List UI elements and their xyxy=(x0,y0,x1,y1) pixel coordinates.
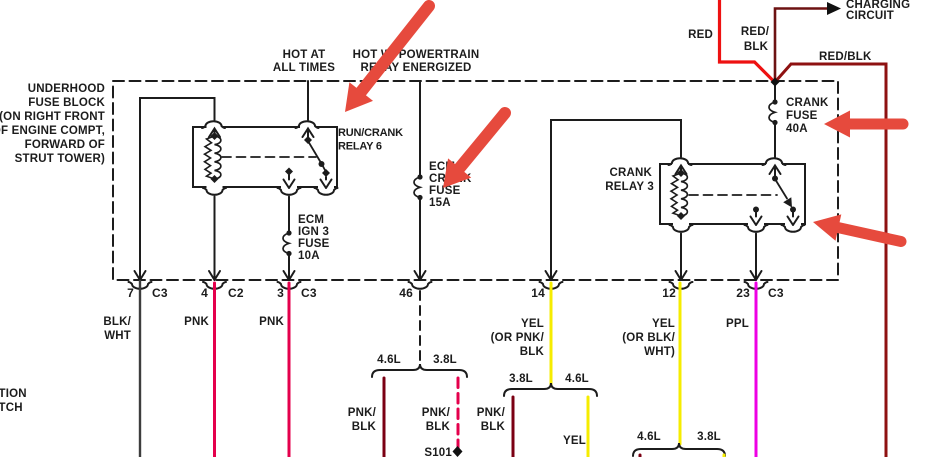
svg-text:4.6L: 4.6L xyxy=(565,373,589,385)
svg-text:(OR BLK/: (OR BLK/ xyxy=(622,332,675,344)
svg-text:4: 4 xyxy=(201,286,208,300)
svg-text:CIRCUIT: CIRCUIT xyxy=(846,10,894,22)
svg-text:YEL: YEL xyxy=(652,318,675,330)
svg-text:TION: TION xyxy=(0,388,27,400)
svg-text:FUSE BLOCK: FUSE BLOCK xyxy=(28,97,105,109)
svg-text:7: 7 xyxy=(127,286,134,300)
svg-text:IGN 3: IGN 3 xyxy=(298,226,329,238)
svg-text:YEL: YEL xyxy=(563,435,586,447)
svg-text:ECM: ECM xyxy=(298,214,324,226)
svg-text:PNK: PNK xyxy=(259,316,284,328)
svg-text:12: 12 xyxy=(662,286,676,300)
svg-text:YEL: YEL xyxy=(521,318,544,330)
svg-text:46: 46 xyxy=(399,286,413,300)
svg-text:BLK: BLK xyxy=(352,421,377,433)
svg-text:ALL TIMES: ALL TIMES xyxy=(273,62,335,74)
svg-text:RELAY 6: RELAY 6 xyxy=(338,141,382,153)
svg-text:BLK/: BLK/ xyxy=(103,316,131,328)
svg-text:10A: 10A xyxy=(298,250,320,262)
svg-text:PNK: PNK xyxy=(184,316,209,328)
svg-text:C3: C3 xyxy=(768,286,784,300)
svg-text:UNDERHOOD: UNDERHOOD xyxy=(28,83,105,95)
svg-text:3.8L: 3.8L xyxy=(697,431,721,443)
svg-text:23: 23 xyxy=(736,286,750,300)
svg-text:15A: 15A xyxy=(429,197,451,209)
svg-text:3.8L: 3.8L xyxy=(433,354,457,366)
svg-text:RED/BLK: RED/BLK xyxy=(819,51,872,63)
svg-text:3: 3 xyxy=(277,286,284,300)
svg-text:PNK/: PNK/ xyxy=(348,407,377,419)
svg-text:40A: 40A xyxy=(786,123,808,135)
svg-text:RED/: RED/ xyxy=(741,26,770,38)
svg-text:(OR PNK/: (OR PNK/ xyxy=(491,332,545,344)
svg-text:WHT): WHT) xyxy=(644,346,675,358)
svg-text:S101: S101 xyxy=(424,447,452,457)
svg-text:C3: C3 xyxy=(301,286,317,300)
svg-text:TCH: TCH xyxy=(0,402,23,414)
svg-text:CRANK: CRANK xyxy=(609,167,652,179)
svg-text:BLK: BLK xyxy=(520,346,545,358)
svg-text:PNK/: PNK/ xyxy=(422,407,451,419)
svg-text:C3: C3 xyxy=(152,286,168,300)
svg-text:C2: C2 xyxy=(228,286,244,300)
svg-text:OF ENGINE COMPT,: OF ENGINE COMPT, xyxy=(0,125,105,137)
svg-text:HOT AT: HOT AT xyxy=(283,49,326,61)
svg-text:WHT: WHT xyxy=(104,330,131,342)
svg-text:FORWARD OF: FORWARD OF xyxy=(25,139,105,151)
svg-text:FUSE: FUSE xyxy=(298,238,330,250)
svg-text:FUSE: FUSE xyxy=(786,110,818,122)
svg-text:14: 14 xyxy=(531,286,545,300)
svg-text:RELAY 3: RELAY 3 xyxy=(605,181,654,193)
svg-text:CRANK: CRANK xyxy=(786,97,829,109)
svg-text:STRUT TOWER): STRUT TOWER) xyxy=(15,153,105,165)
svg-text:RED: RED xyxy=(688,29,713,41)
svg-text:RUN/CRANK: RUN/CRANK xyxy=(338,127,403,139)
svg-text:BLK: BLK xyxy=(426,421,451,433)
svg-text:BLK: BLK xyxy=(744,41,769,53)
svg-text:4.6L: 4.6L xyxy=(637,431,661,443)
svg-text:BLK: BLK xyxy=(481,421,506,433)
svg-text:(ON RIGHT FRONT: (ON RIGHT FRONT xyxy=(0,111,105,123)
svg-text:3.8L: 3.8L xyxy=(509,373,533,385)
svg-text:PPL: PPL xyxy=(726,318,749,330)
svg-text:4.6L: 4.6L xyxy=(377,354,401,366)
svg-text:PNK/: PNK/ xyxy=(477,407,506,419)
svg-text:HOT W/ POWERTRAIN: HOT W/ POWERTRAIN xyxy=(353,49,480,61)
